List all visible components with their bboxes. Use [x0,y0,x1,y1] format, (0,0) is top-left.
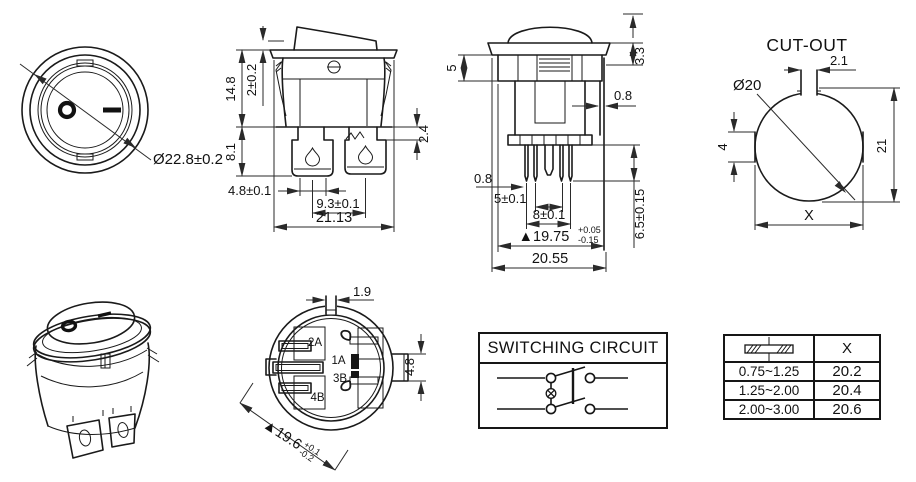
table-row: 0.75~1.25 20.2 [724,362,880,381]
dim-cutout-height: 21 [874,139,889,153]
thickness-range: 0.75~1.25 [724,362,814,381]
dim-terminal-height: 8.1 [226,143,238,161]
dim-key-slot: 1.9 [353,284,371,299]
cutout-title: CUT-OUT [766,35,847,55]
dim-cutout-width: X [804,208,814,224]
dim-rocker-height: 2±0.2 [244,64,259,96]
section-dimensions: 3.3 5 0.8 0.8 5±0.1 8±0.1 ▲19.75 +0.05 [444,14,647,272]
terminal-label-3b: 3B [333,373,347,385]
panel-thickness-icon [744,337,794,361]
thickness-range: 1.25~2.00 [724,381,814,400]
dim-pin-pitch-b: 8±0.1 [533,207,565,222]
x-value: 20.2 [814,362,880,381]
switching-circuit-panel: SWITCHING CIRCUIT [478,332,668,429]
on-symbol-icon [60,103,74,117]
front-section-view: 3.3 5 0.8 0.8 5±0.1 8±0.1 ▲19.75 +0.05 [440,0,672,275]
dim-side-tab: 4.8 [402,358,417,376]
dim-pin-length: 6.5±0.15 [632,189,647,240]
x-value: 20.4 [814,381,880,400]
dim-hole-dia: Ø20 [733,77,761,94]
dim-terminal-width: 4.8±0.1 [228,183,271,198]
terminal-label-1a: 1A [331,355,345,367]
terminal-label-4b: 4B [310,392,324,404]
table-row: 1.25~2.00 20.4 [724,381,880,400]
dim-overall-width: 21.13 [316,210,352,226]
dim-pin-width: 0.8 [474,171,492,186]
front-view-outline [22,47,148,173]
thickness-range: 2.00~3.00 [724,400,814,419]
lamp-icon [546,389,556,399]
side-view-outline [270,27,397,176]
x-value: 20.6 [814,400,880,419]
dim-flange: 3.3 [632,47,647,65]
cutout-view: CUT-OUT 2.1 Ø20 4 [700,0,916,240]
dim-front-diameter: Ø22.8±0.2 [153,151,223,168]
front-view: Ø22.8±0.2 [0,0,230,220]
dim-bezel: 5 [444,64,459,71]
switching-circuit-title: SWITCHING CIRCUIT [480,334,666,364]
dim-slot-width: 2.1 [830,53,848,68]
panel-thickness-symbol-cell [724,335,814,362]
dim-pin-pitch-a: 5±0.1 [494,191,526,206]
dim-step: 2.4 [416,125,431,143]
circuit-wires [497,367,628,414]
on-symbol-3d-icon [62,321,76,332]
side-view-dimensions: 14.8 8.1 2±0.2 2.4 4.8±0.1 9.3±0.1 [226,26,431,232]
perspective-outline [27,296,159,458]
dim-mount-dia-bottom: ▲19.6 [260,417,304,454]
terminal-view: 2A 1A 3B 4B 1.9 4.8 ▲19.6 +0.1 -0.2 [232,282,462,482]
dim-wall: 0.8 [614,88,632,103]
side-view: 14.8 8.1 2±0.2 2.4 4.8±0.1 9.3±0.1 [226,0,444,250]
datasheet-drawing: Ø22.8±0.2 [0,0,916,482]
dim-total-height: 14.8 [226,76,238,101]
off-symbol-3d-icon [98,313,111,316]
panel-thickness-table: X 0.75~1.25 20.2 1.25~2.00 20.4 2.00~3.0… [723,334,881,420]
switching-circuit-diagram [481,365,666,427]
dim-mount-tol-plus: +0.05 [578,225,601,235]
dim-mount-tol-minus: -0.15 [578,235,599,245]
table-row: 2.00~3.00 20.6 [724,400,880,419]
dim-overall: 20.55 [532,251,568,267]
cutout-outline [755,70,863,201]
dim-flat-height: 4 [715,143,730,150]
dim-mount-dia: ▲19.75 [519,229,570,245]
cutout-dimensions: 2.1 Ø20 4 21 X [715,53,900,230]
dim-terminal-pitch: 9.3±0.1 [316,196,359,211]
table-header-x: X [814,335,880,362]
terminal-label-2a: 2A [308,337,322,349]
perspective-view [15,288,180,480]
